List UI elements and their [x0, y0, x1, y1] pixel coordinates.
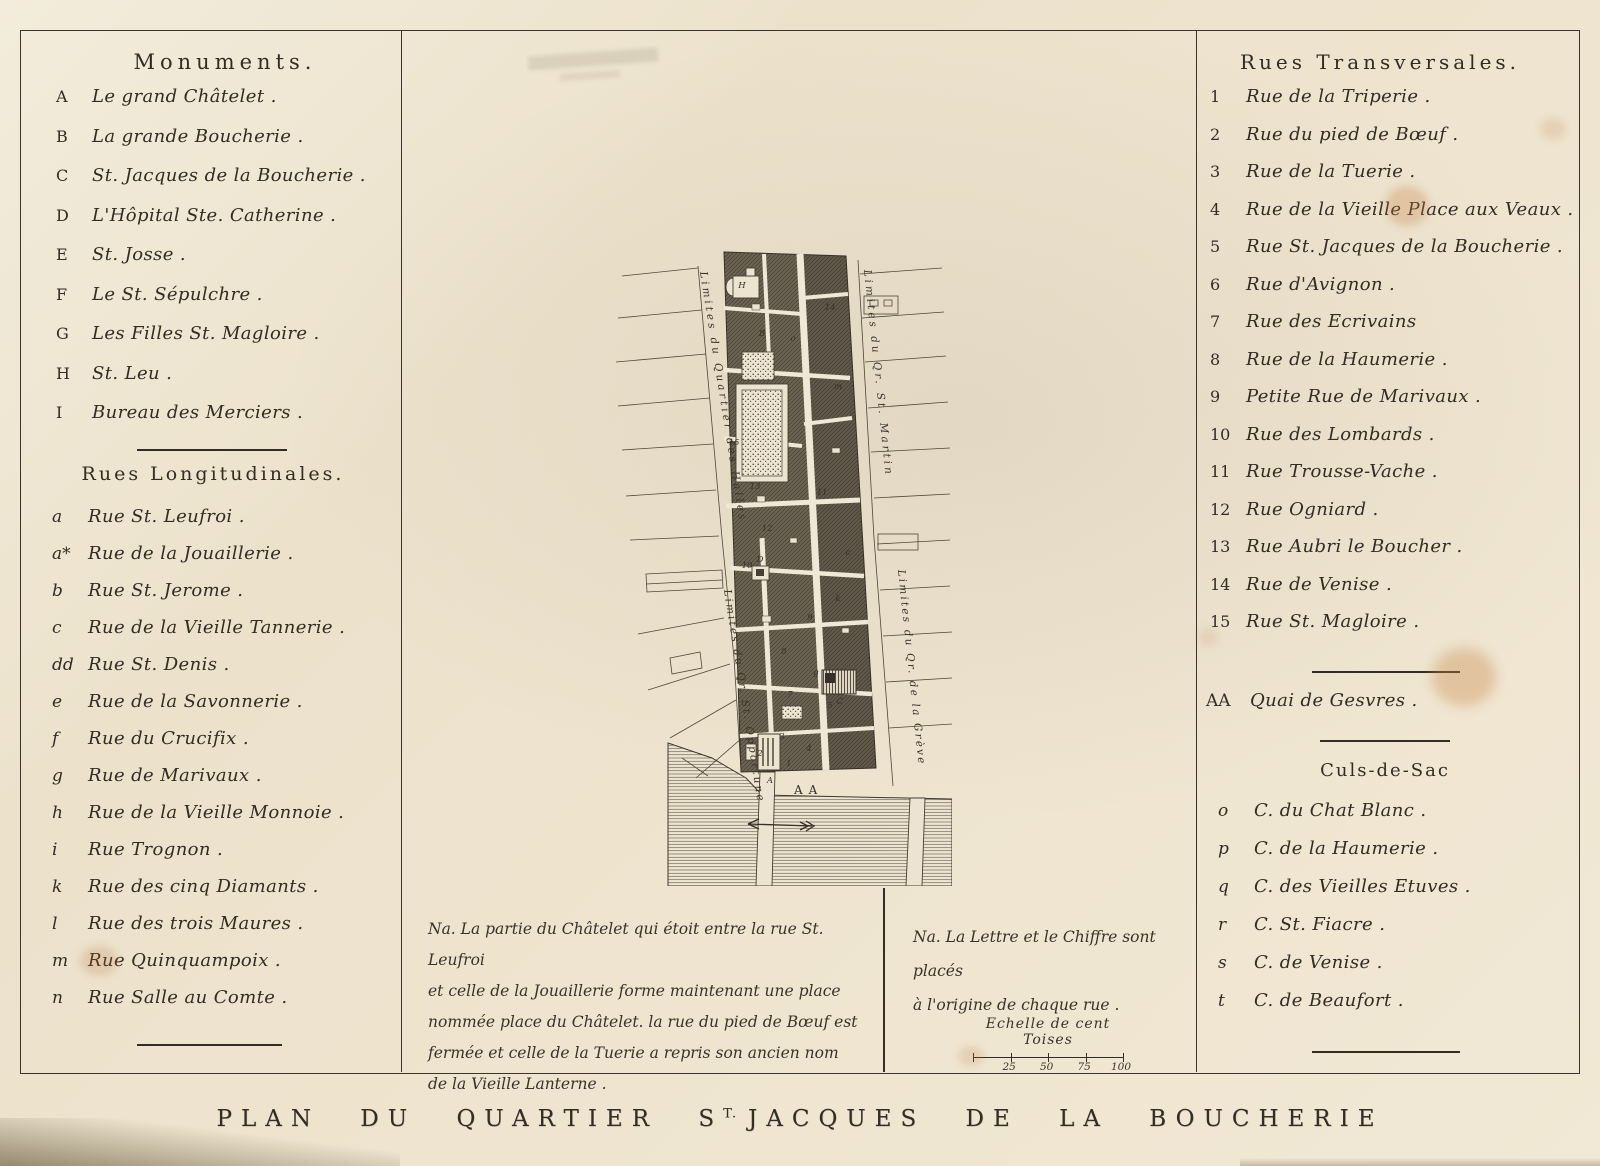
legend-key: 12: [1210, 500, 1246, 519]
legend-row: 11 Rue Trousse-Vache .: [1210, 461, 1574, 499]
legend-label: Rue Trognon .: [88, 839, 223, 860]
legend-row: I Bureau des Merciers .: [56, 402, 366, 442]
map-mark: 12: [762, 524, 773, 534]
legend-row: F Le St. Sépulchre .: [56, 284, 366, 324]
legend-row: 13 Rue Aubri le Boucher .: [1210, 536, 1574, 574]
legend-row: a* Rue de la Jouaillerie .: [52, 543, 345, 580]
scale-label: Echelle de cent Toises: [973, 1016, 1123, 1048]
legend-key: 14: [1210, 575, 1246, 594]
legend-row: h Rue de la Vieille Monnoie .: [52, 802, 345, 839]
legend-label: Rue de la Triperie .: [1246, 86, 1431, 107]
legend-key: p: [1218, 839, 1254, 859]
legend-label: Bureau des Merciers .: [92, 402, 303, 423]
note-line: fermée et celle de la Tuerie a repris so…: [428, 1038, 880, 1069]
rues-transversales-heading: Rues Transversales.: [1215, 50, 1545, 74]
legend-label: Rue St. Jacques de la Boucherie .: [1246, 236, 1563, 257]
legend-label: Rue de Venise .: [1246, 574, 1392, 595]
monuments-list: A Le grand Châtelet . B La grande Bouche…: [56, 86, 366, 442]
legend-label: Rue de la Vieille Tannerie .: [88, 617, 345, 638]
legend-label: Rue des cinq Diamants .: [88, 876, 319, 897]
map-mark: 13: [750, 482, 761, 492]
rues-transversales-list: 1 Rue de la Triperie . 2 Rue du pied de …: [1210, 86, 1574, 649]
plate-title-text: PLAN DU QUARTIER S: [217, 1106, 724, 1132]
legend-key: 13: [1210, 537, 1246, 556]
legend-key: 9: [1210, 387, 1246, 406]
legend-key: 4: [1210, 200, 1246, 219]
legend-row: 12 Rue Ogniard .: [1210, 499, 1574, 537]
legend-key: A: [56, 87, 92, 106]
map-mark: 15: [729, 438, 740, 448]
legend-key: q: [1218, 877, 1254, 897]
legend-key: 6: [1210, 275, 1246, 294]
legend-row: o C. du Chat Blanc .: [1218, 800, 1471, 838]
legend-row: dd Rue St. Denis .: [52, 654, 345, 691]
section-rule: [137, 449, 287, 451]
legend-label: Rue Aubri le Boucher .: [1246, 536, 1463, 557]
legend-row: k Rue des cinq Diamants .: [52, 876, 345, 913]
foxing-stain: [958, 1046, 984, 1066]
legend-key: C: [56, 166, 92, 185]
map-mark: 11: [817, 488, 828, 498]
district-map-svg: Limites du Quartier des Halles Limites d…: [612, 238, 952, 886]
legend-label: Rue de Marivaux .: [88, 765, 262, 786]
st-jacques-church: [822, 670, 856, 694]
left-parcels: [616, 266, 742, 778]
legend-label: Rue St. Leufroi .: [88, 506, 245, 527]
map-mark: o: [790, 334, 795, 344]
foxing-stain: [1540, 118, 1566, 140]
legend-key: 5: [1210, 237, 1246, 256]
legend-key: 7: [1210, 312, 1246, 331]
legend-key: G: [56, 324, 92, 343]
legend-row: e Rue de la Savonnerie .: [52, 691, 345, 728]
legend-label: La grande Boucherie .: [92, 126, 304, 147]
legend-row: f Rue du Crucifix .: [52, 728, 345, 765]
map-mark: 5: [827, 701, 832, 711]
legend-key: 3: [1210, 162, 1246, 181]
legend-key: a: [52, 507, 88, 527]
legend-row: i Rue Trognon .: [52, 839, 345, 876]
map-mark: g: [813, 668, 819, 678]
legend-row: 6 Rue d'Avignon .: [1210, 274, 1574, 312]
legend-key: f: [52, 729, 88, 749]
legend-label: C. de Beaufort .: [1254, 990, 1404, 1011]
legend-label: Rue St. Magloire .: [1246, 611, 1419, 632]
legend-row: 15 Rue St. Magloire .: [1210, 611, 1574, 649]
scale-tick-label: 75: [1077, 1061, 1090, 1073]
plate-title-text: JACQUES DE LA BOUCHERIE: [748, 1106, 1383, 1132]
legend-label: Rue des Lombards .: [1246, 424, 1435, 445]
plate-title-superscript: T.: [723, 1106, 738, 1121]
legend-label: Rue St. Denis .: [88, 654, 230, 675]
legend-key: k: [52, 877, 88, 897]
legend-key: B: [56, 127, 92, 146]
legend-key: 10: [1210, 425, 1246, 444]
legend-label: C. St. Fiacre .: [1254, 914, 1385, 935]
legend-label: Quai de Gesvres .: [1250, 690, 1418, 711]
district-map: Limites du Quartier des Halles Limites d…: [612, 238, 952, 886]
legend-label: Rue de la Tuerie .: [1246, 161, 1416, 182]
legend-key: n: [52, 988, 88, 1008]
foxing-stain: [80, 946, 118, 976]
legend-row: C St. Jacques de la Boucherie .: [56, 165, 366, 205]
legend-row: A Le grand Châtelet .: [56, 86, 366, 126]
note-line: nommée place du Châtelet. la rue du pied…: [428, 1007, 880, 1038]
note-line: Na. La Lettre et le Chiffre sont placés: [913, 920, 1193, 988]
legend-key: 8: [1210, 350, 1246, 369]
legend-row: g Rue de Marivaux .: [52, 765, 345, 802]
legend-label: Les Filles St. Magloire .: [92, 323, 320, 344]
legend-row: a Rue St. Leufroi .: [52, 506, 345, 543]
legend-key: dd: [52, 655, 88, 675]
legend-label: Rue du Crucifix .: [88, 728, 249, 749]
scale-tick-label: 50: [1040, 1061, 1053, 1073]
section-rule: [1312, 1051, 1460, 1053]
legend-label: Rue Trousse-Vache .: [1246, 461, 1438, 482]
legend-label: C. de la Haumerie .: [1254, 838, 1438, 859]
map-mark: 14: [825, 303, 836, 313]
legend-key: l: [52, 914, 88, 934]
legend-row: 14 Rue de Venise .: [1210, 574, 1574, 612]
right-column-divider: [1196, 30, 1197, 1072]
legend-row: H St. Leu .: [56, 363, 366, 403]
map-label-quai-aa: AA: [793, 783, 823, 797]
culs-de-sac-heading: Culs-de-Sac: [1275, 760, 1495, 781]
legend-key: o: [1218, 801, 1254, 821]
legend-row: 5 Rue St. Jacques de la Boucherie .: [1210, 236, 1574, 274]
left-column-divider: [401, 30, 402, 1072]
legend-key: D: [56, 206, 92, 225]
legend-key: a*: [52, 544, 88, 564]
legend-row: B La grande Boucherie .: [56, 126, 366, 166]
scale-bar-block: Echelle de cent Toises 25 50 75 100: [973, 1016, 1123, 1073]
legend-label: C. de Venise .: [1254, 952, 1383, 973]
legend-key: h: [52, 803, 88, 823]
monuments-heading: Monuments.: [40, 50, 410, 74]
legend-key: r: [1218, 915, 1254, 935]
legend-key: I: [56, 403, 92, 422]
note-line: et celle de la Jouaillerie forme mainten…: [428, 976, 880, 1007]
legend-label: Petite Rue de Marivaux .: [1246, 386, 1481, 407]
legend-label: Rue Salle au Comte .: [88, 987, 288, 1008]
legend-label: Rue St. Jerome .: [88, 580, 243, 601]
legend-label: Rue de la Vieille Monnoie .: [88, 802, 344, 823]
map-mark: C: [837, 697, 844, 707]
legend-label: Rue des Ecrivains: [1246, 311, 1417, 332]
legend-row: 2 Rue du pied de Bœuf .: [1210, 124, 1574, 162]
legend-row: n Rue Salle au Comte .: [52, 987, 345, 1024]
map-mark: 8: [781, 647, 787, 657]
map-mark: H: [737, 281, 746, 291]
legend-row: 9 Petite Rue de Marivaux .: [1210, 386, 1574, 424]
legend-row: b Rue St. Jerome .: [52, 580, 345, 617]
engraved-plate-page: { "plate": { "title_pre": "PLAN DU QUART…: [0, 0, 1600, 1166]
hopital-ste-catherine: [752, 566, 769, 580]
legend-row: r C. St. Fiacre .: [1218, 914, 1471, 952]
foxing-stain: [1432, 648, 1496, 706]
map-mark: 9: [807, 613, 813, 623]
legend-key: t: [1218, 991, 1254, 1011]
legend-label: Rue de la Savonnerie .: [88, 691, 303, 712]
map-mark: 1: [786, 759, 791, 769]
legend-label: C. du Chat Blanc .: [1254, 800, 1427, 821]
foxing-stain: [1385, 186, 1429, 226]
legend-row: 10 Rue des Lombards .: [1210, 424, 1574, 462]
legend-key: AA: [1206, 691, 1250, 711]
legend-key: e: [52, 692, 88, 712]
legend-label: L'Hôpital Ste. Catherine .: [92, 205, 336, 226]
legend-label: C. des Vieilles Etuves .: [1254, 876, 1471, 897]
legend-key: E: [56, 245, 92, 264]
legend-row: G Les Filles St. Magloire .: [56, 323, 366, 363]
scale-bar: 25 50 75 100: [973, 1051, 1123, 1073]
map-mark: 4: [805, 744, 811, 754]
legend-label: St. Leu .: [92, 363, 172, 384]
map-mark: m: [834, 382, 842, 392]
map-mark: B: [758, 329, 765, 339]
legend-row: s C. de Venise .: [1218, 952, 1471, 990]
legend-key: 2: [1210, 125, 1246, 144]
legend-row: p C. de la Haumerie .: [1218, 838, 1471, 876]
scale-tick-label: 25: [1002, 1061, 1015, 1073]
notes-divider: [883, 888, 885, 1072]
legend-key: 1: [1210, 87, 1246, 106]
legend-key: 11: [1210, 462, 1246, 481]
legend-label: Le grand Châtelet .: [92, 86, 277, 107]
legend-label: Rue du pied de Bœuf .: [1246, 124, 1459, 145]
legend-label: Rue Ogniard .: [1246, 499, 1379, 520]
legend-label: Rue d'Avignon .: [1246, 274, 1395, 295]
legend-key: c: [52, 618, 88, 638]
map-mark: 3: [779, 732, 784, 742]
map-mark: k: [835, 594, 840, 604]
legend-row: D L'Hôpital Ste. Catherine .: [56, 205, 366, 245]
rues-longitudinales-heading: Rues Longitudinales.: [48, 463, 378, 485]
foxing-stain: [1198, 628, 1218, 646]
page-edge-shadow: [1240, 1158, 1600, 1166]
legend-key: s: [1218, 953, 1254, 973]
section-rule: [137, 1044, 282, 1046]
legend-key: F: [56, 285, 92, 304]
map-mark: A: [766, 776, 773, 786]
legend-row: l Rue des trois Maures .: [52, 913, 345, 950]
legend-row: t C. de Beaufort .: [1218, 990, 1471, 1028]
map-mark: 10: [742, 561, 753, 571]
legend-label: St. Jacques de la Boucherie .: [92, 165, 366, 186]
legend-key: i: [52, 840, 88, 860]
note-line: Na. La partie du Châtelet qui étoit entr…: [428, 914, 880, 976]
legend-key: H: [56, 364, 92, 383]
legend-label: Rue des trois Maures .: [88, 913, 304, 934]
note-chatelet: Na. La partie du Châtelet qui étoit entr…: [428, 914, 880, 1100]
legend-label: Rue de la Haumerie .: [1246, 349, 1448, 370]
map-mark: c: [846, 548, 851, 558]
note-lettre-chiffre: Na. La Lettre et le Chiffre sont placésà…: [913, 920, 1193, 1022]
legend-label: Le St. Sépulchre .: [92, 284, 263, 305]
legend-row: q C. des Vieilles Etuves .: [1218, 876, 1471, 914]
legend-key: b: [52, 581, 88, 601]
quai-row: AA Quai de Gesvres .: [1206, 690, 1418, 711]
legend-key: g: [52, 766, 88, 786]
map-mark: 7: [787, 690, 793, 700]
note-line: de la Vieille Lanterne .: [428, 1069, 880, 1100]
legend-row: 7 Rue des Ecrivains: [1210, 311, 1574, 349]
map-label-martin: Limites du Qr. St. Martin: [861, 268, 895, 477]
legend-row: 8 Rue de la Haumerie .: [1210, 349, 1574, 387]
plate-title: PLAN DU QUARTIER ST.JACQUES DE LA BOUCHE…: [0, 1106, 1600, 1132]
legend-key: 15: [1210, 612, 1246, 631]
section-rule: [1320, 740, 1450, 742]
legend-row: 1 Rue de la Triperie .: [1210, 86, 1574, 124]
legend-label: Rue de la Jouaillerie .: [88, 543, 294, 564]
legend-label: St. Josse .: [92, 244, 186, 265]
map-label-greve: Limites du Qr. de la Grève: [895, 568, 928, 766]
culs-de-sac-list: o C. du Chat Blanc . p C. de la Haumerie…: [1218, 800, 1471, 1028]
map-mark: D: [756, 555, 764, 565]
legend-row: c Rue de la Vieille Tannerie .: [52, 617, 345, 654]
legend-row: E St. Josse .: [56, 244, 366, 284]
map-mark: 2: [756, 749, 762, 759]
scale-tick-label: 100: [1111, 1061, 1131, 1073]
